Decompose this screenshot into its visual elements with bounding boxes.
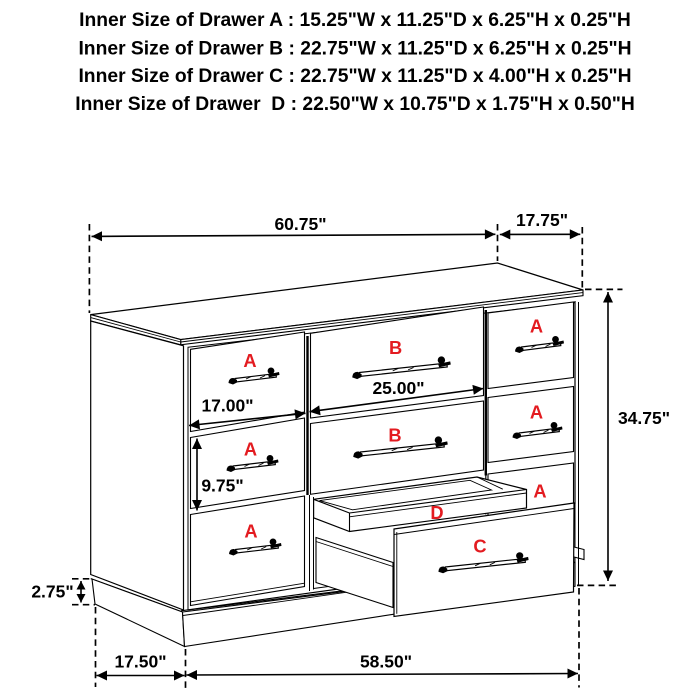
- svg-text:A: A: [244, 439, 257, 460]
- svg-text:A: A: [533, 481, 546, 502]
- svg-text:B: B: [388, 425, 401, 446]
- svg-text:17.00": 17.00": [201, 396, 253, 416]
- svg-text:34.75": 34.75": [618, 408, 670, 428]
- svg-text:25.00": 25.00": [372, 378, 424, 398]
- svg-text:17.75": 17.75": [516, 210, 568, 230]
- svg-text:17.50": 17.50": [114, 652, 166, 672]
- svg-text:2.75": 2.75": [31, 582, 73, 602]
- svg-text:B: B: [389, 337, 402, 358]
- svg-text:A: A: [243, 350, 256, 371]
- svg-text:60.75": 60.75": [274, 214, 326, 234]
- svg-text:Inner Size of Drawer B : 22.75: Inner Size of Drawer B : 22.75"W x 11.25…: [78, 38, 631, 59]
- svg-text:A: A: [244, 521, 257, 542]
- svg-text:Inner Size of Drawer A : 15.25: Inner Size of Drawer A : 15.25"W x 11.25…: [79, 10, 631, 31]
- svg-text:C: C: [473, 535, 486, 556]
- svg-text:9.75": 9.75": [201, 476, 243, 496]
- svg-text:A: A: [530, 402, 543, 423]
- svg-text:Inner Size of Drawer D : 22.5: Inner Size of Drawer D : 22.50"W x 10.75…: [75, 94, 635, 115]
- svg-text:D: D: [430, 502, 443, 523]
- svg-text:Inner Size of Drawer C : 22.75: Inner Size of Drawer C : 22.75"W x 11.25…: [78, 66, 631, 87]
- svg-text:A: A: [530, 316, 543, 337]
- svg-text:58.50": 58.50": [360, 652, 412, 672]
